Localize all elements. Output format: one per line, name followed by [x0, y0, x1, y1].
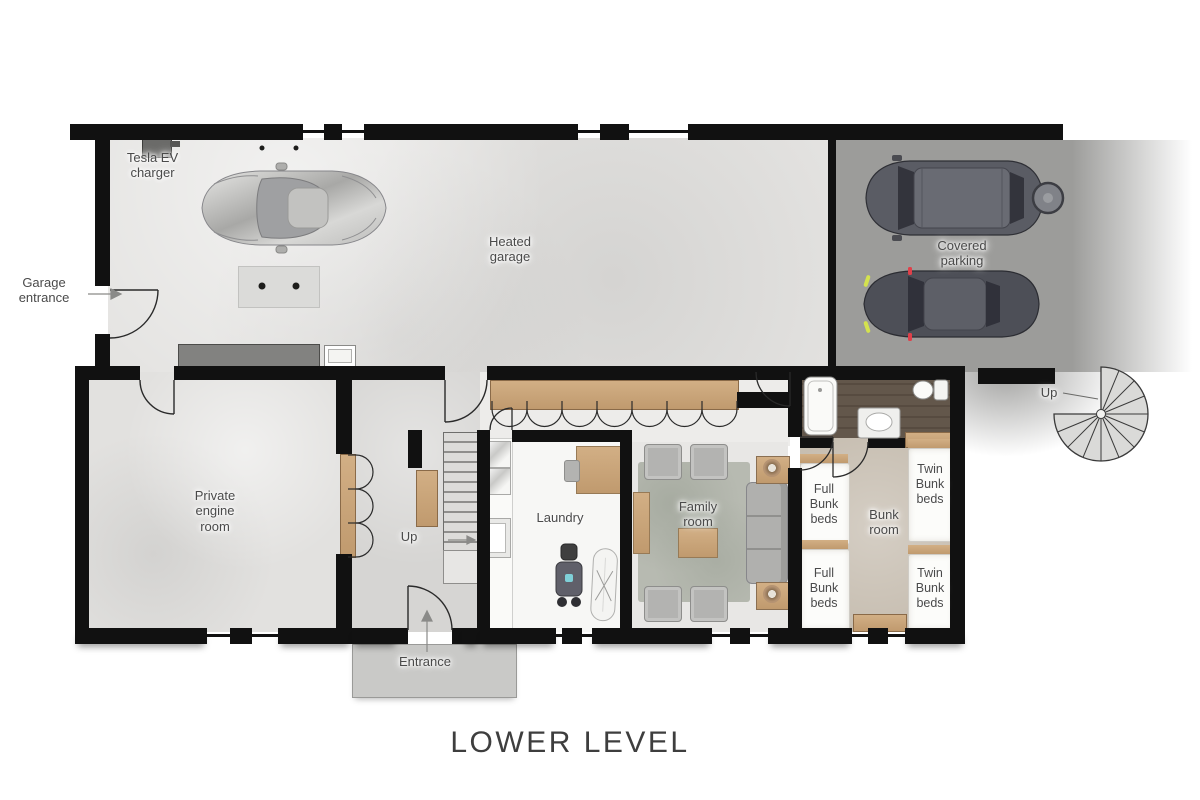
- bathroom-floor: [800, 374, 950, 438]
- wall: [978, 368, 1055, 384]
- wall: [512, 430, 632, 442]
- table-lamp: [763, 459, 781, 477]
- label-garage-entrance: Garage entrance: [2, 275, 86, 306]
- armchair: [644, 586, 682, 622]
- wall: [352, 628, 398, 644]
- wall: [75, 366, 89, 644]
- label-laundry: Laundry: [510, 510, 610, 525]
- label-twin-bunk-upper: Twin Bunk beds: [882, 462, 978, 506]
- wall: [800, 438, 833, 448]
- wall: [477, 430, 490, 628]
- spiral-stair-shadow: [958, 372, 1176, 490]
- armchair: [644, 444, 682, 480]
- wall: [868, 438, 905, 448]
- corridor-closet: [490, 380, 739, 410]
- wall: [737, 392, 788, 408]
- window-mullion: [324, 124, 342, 140]
- wall: [620, 442, 632, 628]
- window-mullion: [730, 628, 750, 644]
- window: [578, 130, 688, 133]
- door-post: [452, 628, 462, 644]
- bed-headboard: [800, 540, 848, 549]
- wall: [592, 628, 712, 644]
- bed-headboard: [908, 545, 952, 554]
- wall: [336, 554, 352, 644]
- wall: [174, 366, 445, 380]
- charging-pad: [238, 266, 320, 308]
- wall: [95, 124, 110, 286]
- hall-closet: [340, 454, 356, 558]
- armchair: [690, 586, 728, 622]
- wall: [336, 366, 352, 454]
- ev-charger-cable: [170, 141, 180, 147]
- door-post: [398, 628, 408, 644]
- wall: [408, 430, 422, 468]
- bed-headboard: [800, 454, 848, 463]
- laundry-table: [576, 446, 624, 494]
- label-full-bunk-upper: Full Bunk beds: [776, 482, 872, 526]
- label-tesla-ev-charger: Tesla EV charger: [110, 150, 195, 181]
- label-spiral-up: Up: [1036, 385, 1062, 400]
- wall: [462, 628, 480, 644]
- label-private-engine-room: Private engine room: [165, 488, 265, 534]
- label-heated-garage: Heated garage: [460, 234, 560, 265]
- workbench: [178, 344, 320, 367]
- window-mullion: [868, 628, 888, 644]
- wall: [828, 140, 836, 366]
- label-covered-parking: Covered parking: [912, 238, 1012, 269]
- wall: [364, 124, 578, 140]
- covered-parking-floor-fade: [1072, 140, 1192, 372]
- coffee-table: [678, 528, 718, 558]
- wall: [487, 366, 950, 380]
- floor-plan: Tesla EV charger Garage entrance Heated …: [0, 0, 1200, 800]
- label-twin-bunk-lower: Twin Bunk beds: [882, 566, 978, 610]
- window-mullion: [562, 628, 582, 644]
- stair-closet: [416, 470, 438, 527]
- wall: [480, 628, 556, 644]
- label-entrance: Entrance: [375, 654, 475, 669]
- wall: [768, 628, 852, 644]
- armchair: [690, 444, 728, 480]
- laundry-chair: [564, 460, 580, 482]
- wall: [788, 366, 802, 437]
- garage-sink: [324, 345, 356, 367]
- bed-headboard: [908, 439, 952, 448]
- window-mullion: [230, 628, 252, 644]
- label-family-room: Family room: [648, 499, 748, 530]
- wall: [688, 124, 1063, 140]
- label-hall-up: Up: [394, 529, 424, 544]
- entrance-patio: [352, 644, 517, 698]
- window-mullion: [600, 124, 629, 140]
- label-full-bunk-lower: Full Bunk beds: [776, 566, 872, 610]
- page-title: LOWER LEVEL: [350, 726, 790, 760]
- wall: [75, 628, 207, 644]
